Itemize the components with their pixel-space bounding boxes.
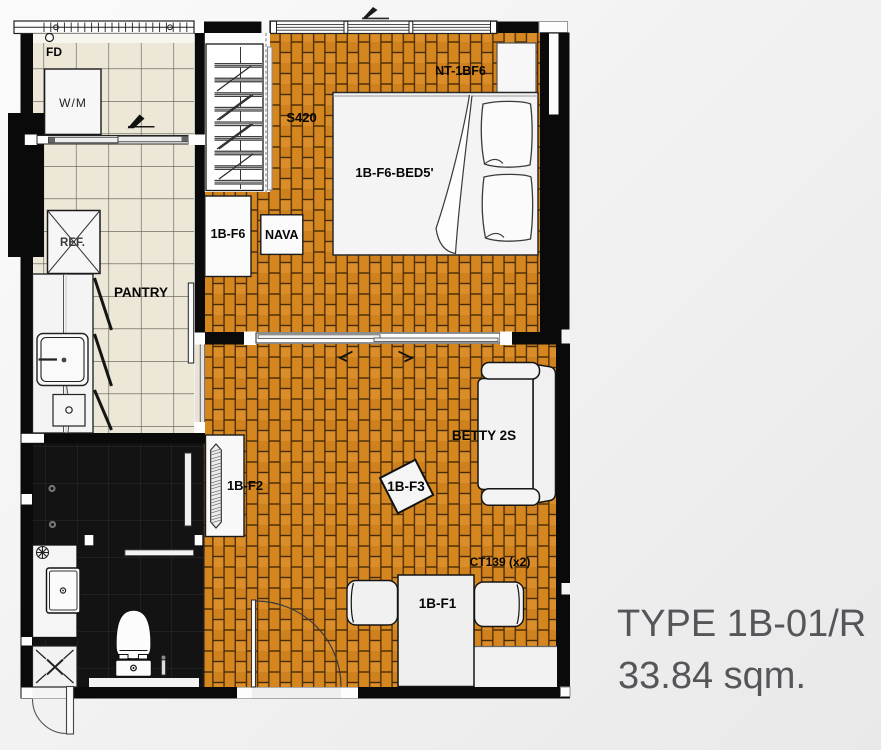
svg-text:CT139 (x2): CT139 (x2) — [470, 555, 531, 569]
svg-text:NT-1BF6: NT-1BF6 — [435, 64, 486, 78]
svg-text:1B-F1: 1B-F1 — [419, 596, 457, 611]
svg-text:33.84 sqm.: 33.84 sqm. — [618, 655, 806, 697]
svg-text:S420: S420 — [286, 110, 316, 125]
svg-text:1B-F3: 1B-F3 — [387, 479, 425, 494]
svg-text:1B-F6: 1B-F6 — [211, 227, 246, 241]
svg-text:TYPE 1B-01/R: TYPE 1B-01/R — [617, 603, 866, 645]
svg-text:W/M: W/M — [59, 96, 87, 110]
svg-text:1B-F6-BED5': 1B-F6-BED5' — [355, 165, 433, 180]
svg-text:1B-F2: 1B-F2 — [227, 478, 263, 493]
svg-text:NAVA: NAVA — [265, 228, 299, 242]
svg-text:BETTY 2S: BETTY 2S — [452, 428, 516, 443]
svg-text:REF.: REF. — [60, 237, 85, 249]
svg-text:PANTRY: PANTRY — [114, 285, 168, 300]
svg-text:FD: FD — [46, 45, 62, 59]
